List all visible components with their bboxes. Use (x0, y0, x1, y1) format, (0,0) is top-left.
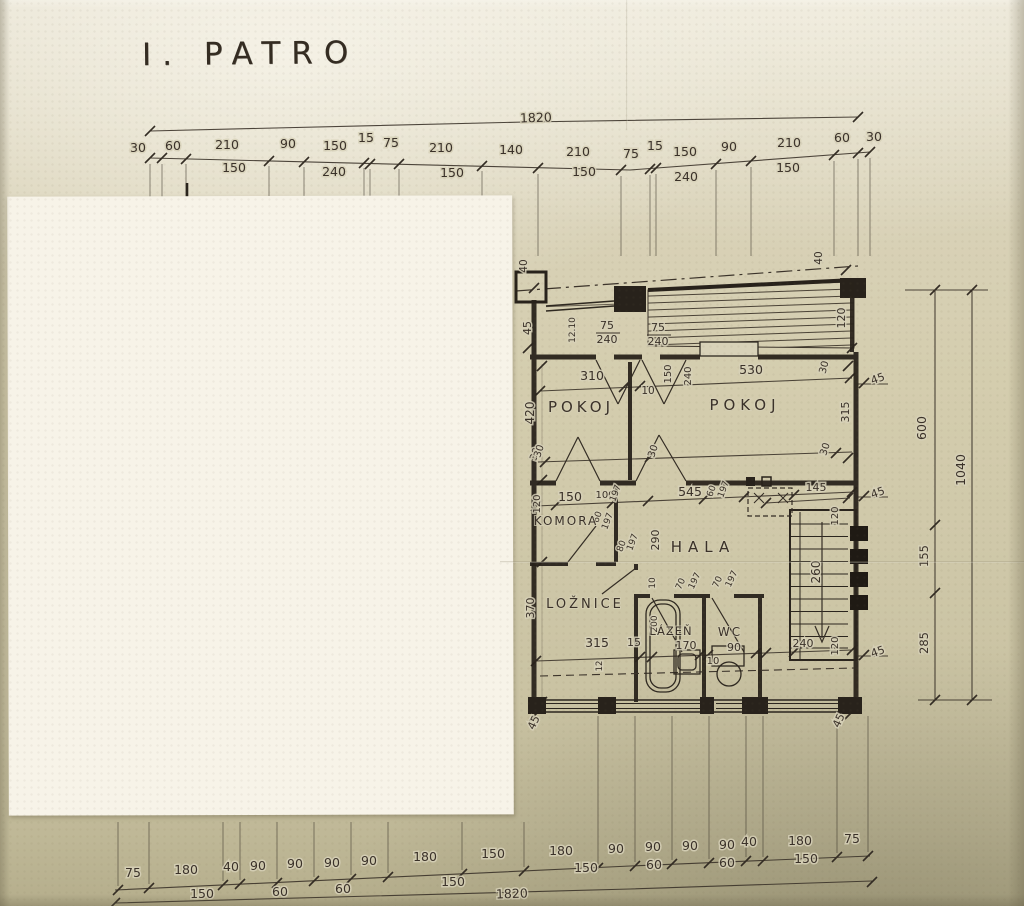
dim-label: 240 (674, 169, 698, 184)
dim-label: 15 (647, 138, 663, 153)
dim-label: 75 (651, 321, 665, 334)
dim-label: 75 (125, 865, 141, 880)
balcony-window (700, 342, 758, 356)
dim-label: 600 (914, 416, 929, 440)
dim-label: 150 (481, 846, 505, 861)
dim-label: 40 (741, 834, 757, 849)
dim-total-right: 1040 (953, 454, 968, 486)
room-label-pokoj1: POKOJ (548, 398, 614, 416)
dim-label: 75 (383, 135, 399, 150)
dim-label: 285 (917, 632, 931, 654)
dim-label: 545 (678, 484, 702, 499)
dim-label: 60 (646, 857, 662, 872)
annotation: 12.10 (568, 317, 578, 343)
dim-label: 30 (818, 441, 832, 457)
dim-label: 45 (869, 370, 887, 387)
dim-label: 150 (776, 160, 800, 175)
dim-label: 150 (574, 860, 598, 875)
dim-label: 40 (518, 259, 530, 272)
dim-label: 90 (682, 838, 698, 853)
dim-label: 240 (648, 335, 669, 348)
dim-label: 150 (663, 364, 674, 383)
dim-label: 15 (627, 636, 641, 649)
dim-label: 60 (272, 884, 288, 899)
dim-label: 197 (608, 484, 623, 504)
dim-label: 145 (806, 481, 827, 494)
dim-label: 45 (869, 484, 887, 501)
scanned-floorplan-page: 30 60 210 90 150 15 75 210 140 210 75 15… (0, 0, 1024, 906)
dim-label: 150 (440, 165, 464, 180)
dim-label: 70 (711, 575, 725, 590)
dim-label: 155 (917, 545, 931, 567)
dim-label: 150 (323, 138, 347, 153)
annotation: 12 (595, 661, 605, 672)
dim-label: 45 (521, 321, 534, 335)
dim-label: 240 (322, 164, 346, 179)
dim-label: 240 (793, 637, 814, 650)
dim-label: 75 (623, 146, 639, 161)
dim-label: 150 (222, 160, 246, 175)
balcony-pillar (614, 286, 646, 312)
dim-label: 150 (673, 144, 697, 159)
dim-label: 90 (250, 858, 266, 873)
balcony-above-dashed (540, 668, 854, 676)
room-label-wc: WC (718, 625, 742, 639)
dim-label: 30 (532, 443, 546, 459)
dim-label: 310 (580, 368, 604, 383)
drawing-title: I. PATRO (142, 35, 360, 73)
dim-label: 315 (839, 402, 852, 423)
dim-label: 15 (358, 130, 374, 145)
dim-label: 197 (724, 569, 740, 589)
dim-label: 90 (721, 139, 737, 154)
dim-label: 150 (441, 874, 465, 889)
dim-label: 10 (641, 385, 654, 397)
dim-label: 120 (835, 308, 848, 329)
dim-label: 180 (413, 849, 437, 864)
dim-label: 170 (676, 639, 697, 652)
room-label-hala: HALA (671, 538, 736, 556)
dim-label: 75 (600, 319, 614, 332)
dim-label: 210 (777, 135, 801, 150)
stair-treads (790, 524, 848, 648)
dim-label: 10 (707, 656, 720, 667)
dim-label: 45 (525, 713, 543, 731)
dim-label: 60 (165, 138, 181, 153)
dim-label: 210 (566, 144, 590, 159)
dim-label: 90 (324, 855, 340, 870)
dim-label: 70 (674, 577, 688, 592)
room-label-komora: KOMORA (534, 514, 599, 528)
dim-label: 197 (687, 571, 703, 591)
dim-label: 75 (844, 831, 860, 846)
dim-label: 120 (532, 494, 543, 513)
dim-label: 240 (683, 366, 694, 385)
dim-label: 90 (280, 136, 296, 151)
dim-label: 290 (649, 530, 662, 551)
dim-label: 60 (719, 855, 735, 870)
dim-label: 180 (788, 833, 812, 848)
dim-label: 90 (727, 641, 741, 654)
dim-label: 40 (223, 859, 239, 874)
room-label-lazen: LÁZEŇ (649, 623, 692, 638)
dim-label: 60 (335, 881, 351, 896)
dim-label: 10 (648, 577, 658, 589)
room-label-pokoj2: POKOJ (709, 396, 780, 414)
dim-label: 180 (174, 862, 198, 877)
paper-overlay (7, 195, 514, 815)
dim-label: 90 (361, 853, 377, 868)
dim-label: 45 (869, 643, 887, 660)
dim-label: 370 (524, 598, 537, 619)
dim-label: 150 (190, 886, 214, 901)
window-symbols (546, 704, 838, 709)
dim-label: 90 (645, 839, 661, 854)
dim-label: 260 (809, 561, 823, 584)
dim-label: 120 (830, 506, 841, 525)
dim-label: 40 (813, 251, 825, 264)
dim-label: 180 (549, 843, 573, 858)
dim-label: 240 (597, 333, 618, 346)
dim-label: 30 (646, 443, 660, 459)
dim-label: 60 (834, 130, 850, 145)
dim-label: 30 (130, 140, 146, 155)
dim-label: 150 (572, 164, 596, 179)
dim-label: 30 (818, 360, 832, 375)
dim-label: 150 (794, 851, 818, 866)
dim-label: 90 (287, 856, 303, 871)
dim-total-top: 1820 (520, 109, 552, 125)
dim-label: 90 (608, 841, 624, 856)
dim-label: 210 (429, 140, 453, 155)
dim-label: 45 (830, 711, 848, 729)
room-labels: POKOJ POKOJ HALA KOMORA LOŽNICE LÁZEŇ WC (534, 396, 781, 639)
wall-vent (746, 477, 755, 486)
dim-label: 530 (739, 362, 763, 377)
dim-label: 30 (866, 129, 882, 144)
room-label-loznice: LOŽNICE (546, 596, 624, 612)
bottom-wall (528, 668, 862, 714)
dim-label: 90 (719, 837, 735, 852)
dim-label: 210 (215, 137, 239, 152)
dim-label: 140 (499, 142, 523, 157)
dim-label: 120 (830, 636, 841, 655)
top-left-pier (516, 272, 546, 302)
dim-label: 197 (625, 533, 640, 553)
dim-label: 150 (558, 489, 582, 504)
dim-label: 420 (523, 402, 537, 425)
dim-label: 315 (585, 635, 609, 650)
dim-total-bottom: 1820 (496, 885, 528, 901)
